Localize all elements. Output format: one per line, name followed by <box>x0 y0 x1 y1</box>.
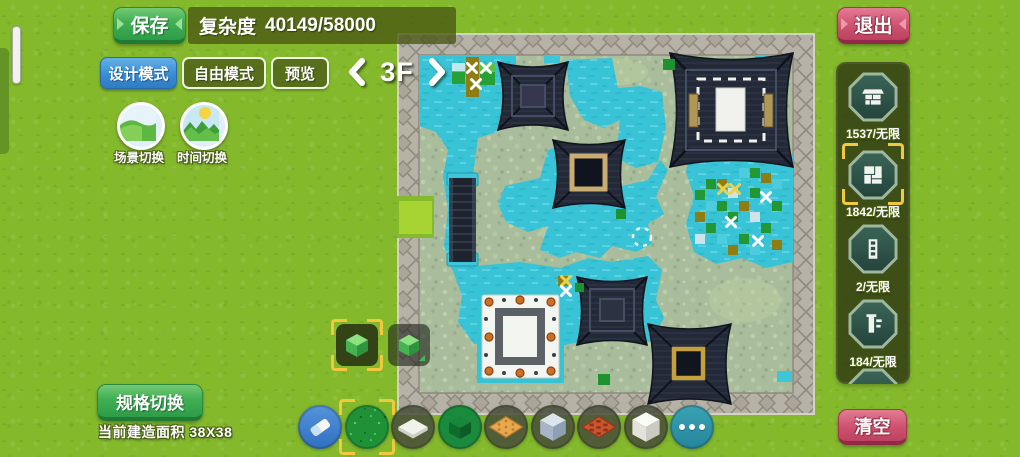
preview-button[interactable]: 预览 <box>271 57 329 89</box>
floor-tile-icon <box>860 162 886 188</box>
next-floor-icon[interactable] <box>429 58 446 86</box>
floor-selector: 3F <box>348 53 446 91</box>
edge-panel-hint <box>0 48 9 154</box>
clear-button[interactable]: 清空 <box>838 409 907 445</box>
preview-label: 预览 <box>285 63 315 84</box>
exit-button-label: 退出 <box>854 11 892 38</box>
green-block-button[interactable] <box>438 405 482 449</box>
resource-item-bricks[interactable] <box>848 72 898 122</box>
block-toolbar <box>298 405 714 449</box>
resource-count-bricks: 1537/无限 <box>836 125 910 142</box>
resource-item-tiles[interactable] <box>848 150 898 200</box>
save-button[interactable]: 保存 <box>113 7 186 44</box>
complexity-bar: 复杂度 40149/58000 <box>188 7 456 44</box>
scene-icon <box>120 105 156 141</box>
green-cube-icon <box>343 331 371 359</box>
save-button-label: 保存 <box>130 11 168 38</box>
prev-floor-icon[interactable] <box>348 58 365 86</box>
build-area-value: 38X38 <box>189 424 232 440</box>
clear-button-label: 清空 <box>855 413 891 439</box>
map-border-notch <box>397 196 434 238</box>
time-icon <box>183 105 219 141</box>
pavilion-bottom-middle[interactable] <box>577 277 647 345</box>
wood-pattern-tile-icon <box>487 412 525 442</box>
spec-switch-button[interactable]: 规格切换 <box>97 384 203 421</box>
red-grid-tile-button[interactable] <box>577 405 621 449</box>
stone-cube-icon <box>538 411 568 443</box>
grass-block-button[interactable] <box>345 405 389 449</box>
resource-item-doors[interactable] <box>848 224 898 274</box>
spec-switch-label: 规格切换 <box>116 389 184 414</box>
white-flat-tile-icon <box>395 412 431 442</box>
resource-item-pillars[interactable] <box>848 299 898 349</box>
more-icon <box>677 424 707 430</box>
block-quick-slot-selected[interactable] <box>336 324 378 366</box>
pavilion-top-right[interactable] <box>670 53 793 167</box>
more-blocks-button[interactable] <box>670 405 714 449</box>
floor-label: 3F <box>380 57 414 88</box>
map-canvas[interactable] <box>397 33 815 415</box>
pavilion-top-left[interactable] <box>498 62 568 130</box>
time-switch-label: 时间切换 <box>165 147 239 166</box>
stone-cube-button[interactable] <box>531 405 575 449</box>
green-cube-dropdown-icon <box>396 332 422 358</box>
complexity-value: 40149/58000 <box>265 15 376 37</box>
resource-panel: 1537/无限 1842/无限 2/无限 184/无限 <box>836 62 910 384</box>
game-screen: { "top_bar": { "save_label": "保存", "comp… <box>0 0 1020 457</box>
build-area-text: 当前建造面积 38X38 <box>98 422 232 442</box>
design-mode-button[interactable]: 设计模式 <box>100 57 177 89</box>
brick-block-icon <box>860 84 886 110</box>
selection-brackets <box>339 399 395 455</box>
pavilion-bottom-right[interactable] <box>648 324 731 404</box>
complexity-label: 复杂度 <box>199 12 256 39</box>
exit-button[interactable]: 退出 <box>837 7 910 44</box>
scene-switch-button[interactable] <box>117 102 165 150</box>
door-icon <box>860 236 886 262</box>
resource-count-pillars: 184/无限 <box>836 353 910 370</box>
time-switch-button[interactable] <box>180 102 228 150</box>
pavilion-middle[interactable] <box>553 140 625 208</box>
eraser-tool-button[interactable] <box>298 405 342 449</box>
free-mode-label: 自由模式 <box>194 63 254 84</box>
open-floor-building[interactable] <box>477 290 564 383</box>
wood-pattern-tile-button[interactable] <box>484 405 528 449</box>
build-area-label: 当前建造面积 <box>98 424 185 440</box>
resource-count-tiles: 1842/无限 <box>836 203 910 220</box>
red-grid-tile-icon <box>580 412 618 442</box>
resource-count-doors: 2/无限 <box>836 278 910 295</box>
eraser-icon <box>307 414 333 440</box>
white-cube-icon <box>630 410 662 444</box>
dock-structure[interactable] <box>447 173 478 266</box>
green-block-icon <box>446 413 474 441</box>
design-mode-label: 设计模式 <box>108 63 168 84</box>
scrollbar-handle[interactable] <box>12 26 21 84</box>
white-flat-tile-button[interactable] <box>391 405 435 449</box>
white-cube-button[interactable] <box>624 405 668 449</box>
pillar-icon <box>860 311 886 337</box>
block-quick-slot-dropdown[interactable] <box>388 324 430 366</box>
free-mode-button[interactable]: 自由模式 <box>182 57 266 89</box>
resource-item-partial[interactable] <box>848 368 898 384</box>
